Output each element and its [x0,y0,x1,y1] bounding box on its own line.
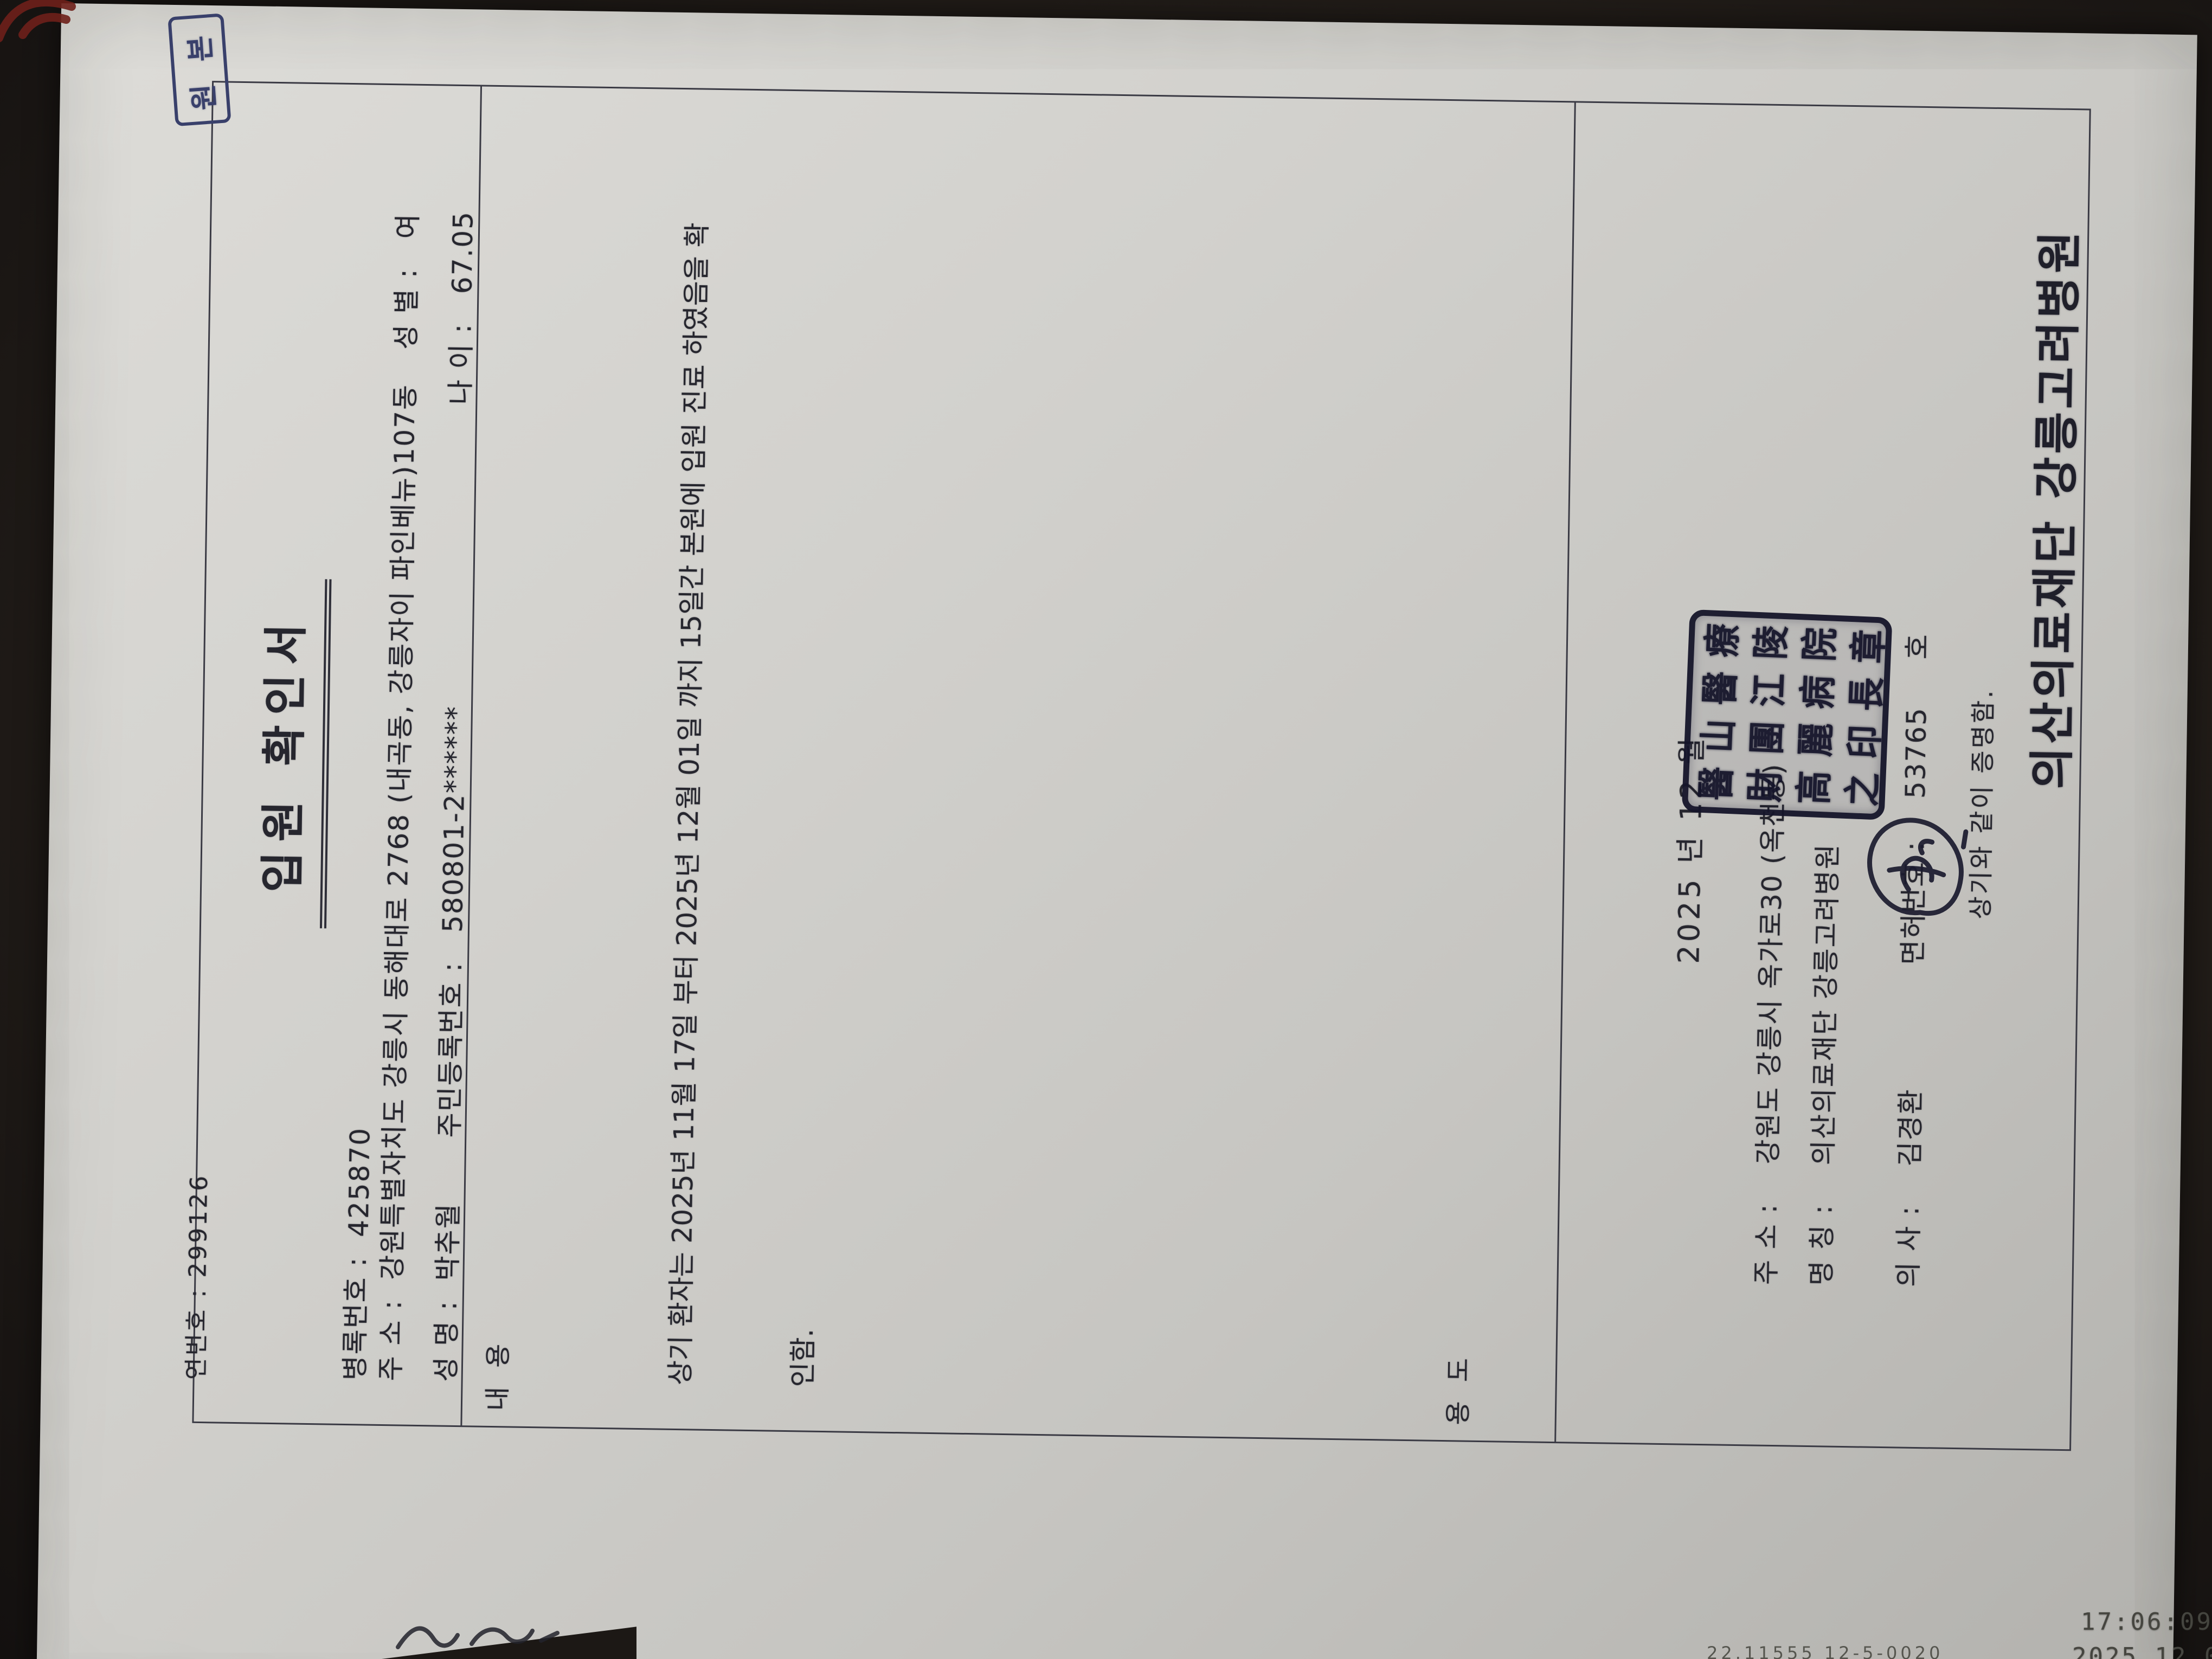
address-label: 주 소 : [369,1299,409,1381]
purpose-section-label: 용 도 [1437,1352,1476,1425]
camera-timestamp-time: 17:06:09 [2081,1608,2212,1636]
age-value: 67.05 [446,211,479,294]
sex-field: 성 별 : 여 [384,85,427,350]
hospital-seal-stamp: 醫 山 醫 療 財 團 江 陵 高 麗 病 院 之 印 長 章 [1682,609,1893,820]
record-number-label: 병록번호 : [333,1256,374,1381]
age-label: 나 이 : [445,323,477,404]
sex-value: 여 [392,213,424,239]
issuer-address-value: 강원도 강릉시 옥가로30 (옥천동) [1752,763,1790,1165]
doctor-signature-scribble [1856,807,1977,928]
license-number: 53765 [1900,707,1933,799]
issuer-org-value: 의산의료재단 강릉고려병원 [1808,843,1844,1166]
doctor-row: 의 사 : 김경환 면허번호 : 53765 호 [1886,633,1935,1288]
license-suffix: 호 [1902,633,1934,660]
document-title: 입원 확인서 [238,83,339,1423]
issuer-address-label: 주 소 : [1750,1203,1783,1285]
original-copy-stamp: 원 본 [168,13,231,126]
doctor-label: 의 사 : [1892,1205,1925,1287]
purpose-issue-divider [1554,102,1576,1442]
hospital-name-large: 의산의료재단 강릉고려병원 [2015,228,2089,789]
issuer-address-row: 주 소 : 강원도 강릉시 옥가로30 (옥천동) [1744,763,1791,1285]
content-text-line1: 상기 환자는 2025년 11월 17일 부터 2025년 12월 01일 까지… [659,222,715,1386]
rrn-label: 주민등록번호 : [434,961,468,1138]
photo-of-document: 연번호 : 299126 원 본 입원 확인서 병록번호 : 425870 주 … [0,0,2212,1659]
paper-sheet: 연번호 : 299126 원 본 입원 확인서 병록번호 : 425870 주 … [36,3,2197,1659]
issuer-org-row: 명 칭 : 의산의료재단 강릉고려병원 [1799,843,1845,1286]
name-label: 성 명 : [425,1300,465,1382]
content-section-label: 내 용 [476,1338,515,1411]
issuer-org-label: 명 칭 : [1805,1204,1838,1285]
sex-label: 성 별 : [390,268,423,350]
doctor-name: 김경환 [1894,1088,1927,1167]
red-pen-mark-top-left [0,0,93,48]
camera-timestamp-date: 2025.12.02 [2072,1643,2212,1659]
serial-number: 연번호 : 299126 [177,1173,215,1380]
content-text-line2: 인함. [781,1328,821,1387]
rrn-value: 580801-2****** [437,705,472,933]
handwriting-marks-bottom-edge [390,1609,564,1659]
underlying-page-edge-text: 22.11555 12-5-0020 [1707,1643,1943,1659]
name-row: 성 명 : 박추월 주민등록번호 : 580801-2****** 나 이 : … [423,86,483,1425]
name-value: 박추월 [426,1203,466,1281]
form-border-box: 입원 확인서 병록번호 : 425870 주 소 : 강원특별자치도 강릉시 동… [192,81,2091,1451]
